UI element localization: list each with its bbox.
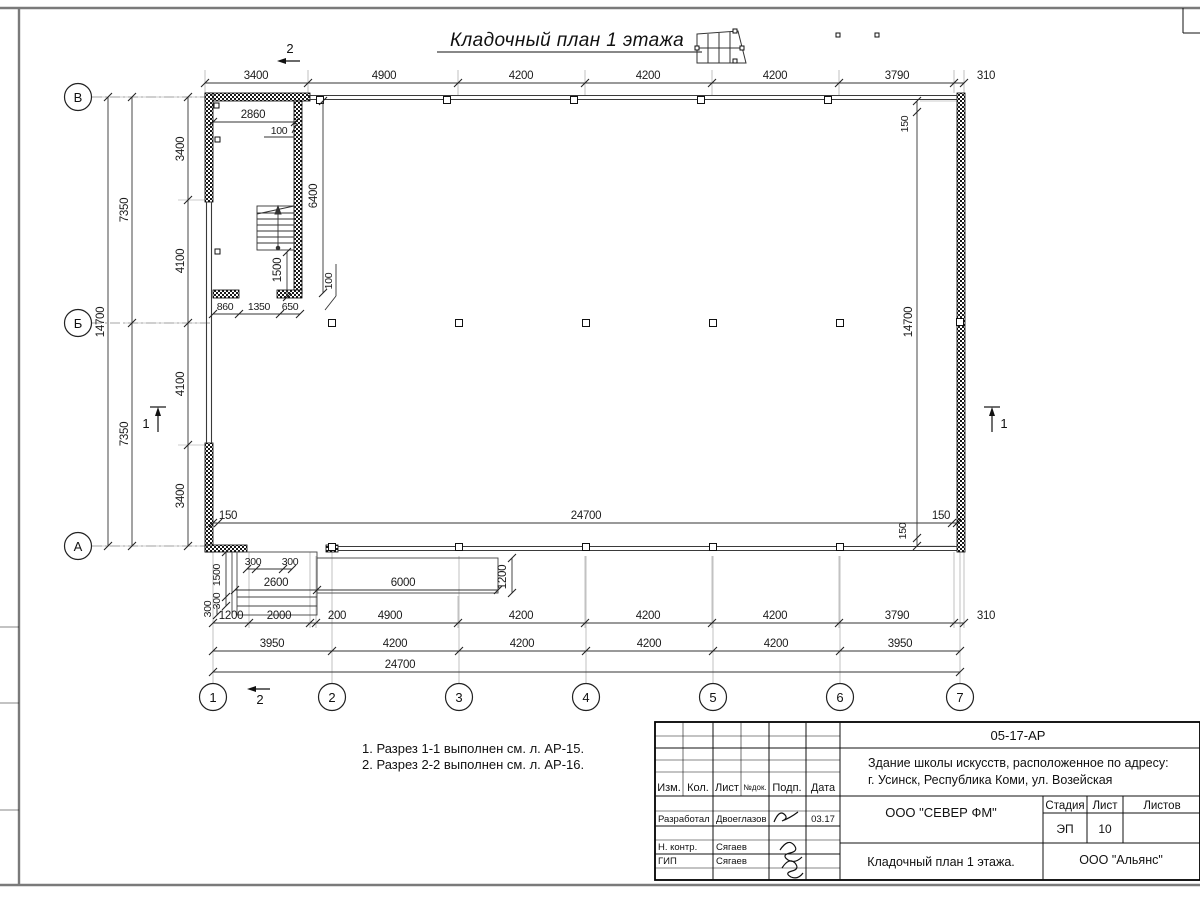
- col-izm: Изм.: [657, 782, 681, 794]
- dim-inner-150r: 150: [932, 510, 950, 522]
- dim-b2-4: 4200: [637, 638, 661, 650]
- axis-label-5: 5: [709, 690, 716, 705]
- col-podp: Подп.: [772, 782, 801, 794]
- sheet-value: 10: [1098, 822, 1112, 836]
- row3-name: Сягаев: [716, 856, 747, 867]
- dim-6400: 6400: [308, 184, 320, 208]
- column-markers: [214, 97, 964, 551]
- doc-code: 05-17-АР: [991, 728, 1046, 743]
- dim-v1500: 1500: [211, 563, 223, 586]
- section-2-top: 2: [286, 41, 293, 56]
- grid-axes: [92, 70, 964, 683]
- title-block: 05-17-АР Здание школы искусств, располож…: [655, 722, 1200, 880]
- design-org: ООО "СЕВЕР ФМ": [885, 805, 997, 820]
- dim-1500: 1500: [272, 258, 284, 282]
- row1-name: Двоеглазов: [716, 814, 767, 825]
- dim-left-overall: 14700: [95, 307, 107, 337]
- dim-left-in-2: 4100: [175, 249, 187, 273]
- axis-label-1: 1: [209, 690, 216, 705]
- dim-left-half-1: 7350: [119, 198, 131, 222]
- row2-name: Сягаев: [716, 842, 747, 853]
- axis-label-7: 7: [956, 690, 963, 705]
- col-kol: Кол.: [687, 782, 709, 794]
- row1-date: 03.17: [811, 814, 835, 825]
- dim-inner-24700: 24700: [571, 510, 601, 522]
- dim-top-4: 4200: [636, 70, 660, 82]
- axis-label-6: 6: [836, 690, 843, 705]
- stage-label: Стадия: [1045, 800, 1084, 812]
- dim-b2-3: 4200: [510, 638, 534, 650]
- drawing-title: Кладочный план 1 этажа: [437, 30, 702, 52]
- project-address-2: г. Усинск, Республика Коми, ул. Возейска…: [868, 773, 1112, 787]
- dim-left-in-1: 3400: [175, 137, 187, 161]
- note-line-2: 2. Разрез 2-2 выполнен см. л. АР-16.: [362, 757, 584, 772]
- dim-1350: 1350: [248, 301, 271, 313]
- dim-2600: 2600: [264, 577, 288, 589]
- dim-left-in-4: 3400: [175, 484, 187, 508]
- dimension-lines: [104, 79, 968, 676]
- dim-b1-5: 4200: [509, 610, 533, 622]
- col-data: Дата: [811, 782, 836, 794]
- dim-b2-1: 3950: [260, 638, 284, 650]
- dim-b2-5: 4200: [764, 638, 788, 650]
- dim-top-6: 3790: [885, 70, 909, 82]
- dim-top-5: 4200: [763, 70, 787, 82]
- project-address-1: Здание школы искусств, расположенное по …: [868, 756, 1169, 770]
- dim-b1-8: 3790: [885, 610, 909, 622]
- dim-b1-7: 4200: [763, 610, 787, 622]
- section-1-left: 1: [142, 416, 149, 431]
- dim-b3: 24700: [385, 659, 415, 671]
- axis-label-2: 2: [328, 690, 335, 705]
- drawing-sheet: Кладочный план 1 этажа: [0, 0, 1200, 900]
- axis-label-v: В: [74, 90, 83, 105]
- dim-1200v: 1200: [497, 565, 509, 589]
- notes: 1. Разрез 1-1 выполнен см. л. АР-15. 2. …: [362, 741, 584, 772]
- row2-role: Н. контр.: [658, 842, 697, 853]
- dim-right-overall: 14700: [903, 307, 915, 337]
- dim-top-1: 3400: [244, 70, 268, 82]
- dim-b1-1: 1200: [219, 610, 243, 622]
- dim-100b: 100: [323, 272, 335, 289]
- sheets-label: Листов: [1143, 800, 1180, 812]
- col-list: Лист: [715, 782, 739, 794]
- dim-v300b: 300: [202, 600, 214, 617]
- dim-100a: 100: [271, 125, 288, 137]
- dim-top-2: 4900: [372, 70, 396, 82]
- drawing-name: Кладочный план 1 этажа.: [867, 855, 1015, 869]
- dim-860: 860: [217, 301, 234, 313]
- dim-b1-4: 4900: [378, 610, 402, 622]
- dimension-labels: 3400 4900 4200 4200 4200 3790 310 14700 …: [95, 70, 995, 671]
- dim-inner-150l: 150: [219, 510, 237, 522]
- dim-top-7: 310: [977, 70, 995, 82]
- section-marks: 2 2 1 1: [142, 41, 1007, 707]
- row3-role: ГИП: [658, 856, 677, 867]
- dim-b2-6: 3950: [888, 638, 912, 650]
- note-line-1: 1. Разрез 1-1 выполнен см. л. АР-15.: [362, 741, 584, 756]
- col-ndok: №док.: [743, 783, 766, 792]
- key-plan-sketch: [695, 29, 879, 63]
- dim-2860: 2860: [241, 109, 265, 121]
- sheet-label: Лист: [1093, 800, 1119, 812]
- dim-b1-2: 2000: [267, 610, 291, 622]
- dim-left-half-2: 7350: [119, 422, 131, 446]
- row1-role: Разработал: [658, 814, 710, 825]
- client-org: ООО "Альянс": [1079, 853, 1163, 867]
- dim-b2-2: 4200: [383, 638, 407, 650]
- axis-label-4: 4: [582, 690, 589, 705]
- dim-right-150-bot: 150: [897, 522, 909, 539]
- dim-650: 650: [282, 301, 299, 313]
- plan-title: Кладочный план 1 этажа: [450, 30, 684, 51]
- dim-top-3: 4200: [509, 70, 533, 82]
- dim-p300b: 300: [282, 556, 299, 568]
- dim-b1-6: 4200: [636, 610, 660, 622]
- section-2-bottom: 2: [256, 692, 263, 707]
- floor-plan-canvas: Кладочный план 1 этажа: [0, 0, 1200, 900]
- stage-value: ЭП: [1056, 822, 1073, 836]
- axis-label-a: А: [74, 539, 83, 554]
- dim-right-150-top: 150: [899, 115, 911, 132]
- section-1-right: 1: [1000, 416, 1007, 431]
- staircase: [257, 206, 294, 250]
- dim-left-in-3: 4100: [175, 372, 187, 396]
- dim-p300a: 300: [245, 556, 262, 568]
- dim-b1-9: 310: [977, 610, 995, 622]
- axis-label-b: Б: [74, 316, 83, 331]
- dim-6000: 6000: [391, 577, 415, 589]
- dim-b1-3: 200: [328, 610, 346, 622]
- axis-label-3: 3: [455, 690, 462, 705]
